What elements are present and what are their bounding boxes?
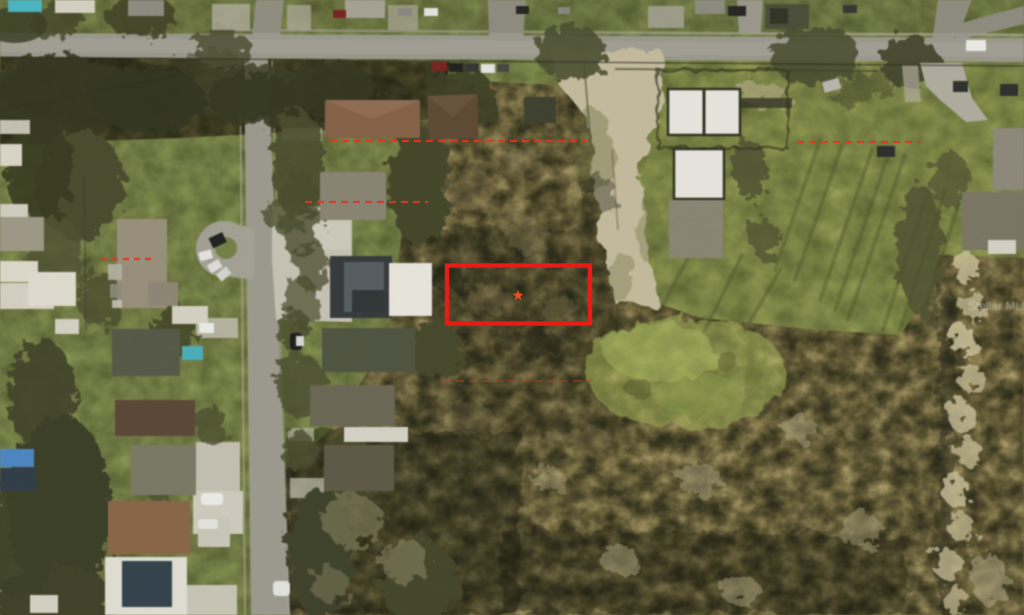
svg-text:Stellar MLS: Stellar MLS: [968, 299, 1024, 313]
